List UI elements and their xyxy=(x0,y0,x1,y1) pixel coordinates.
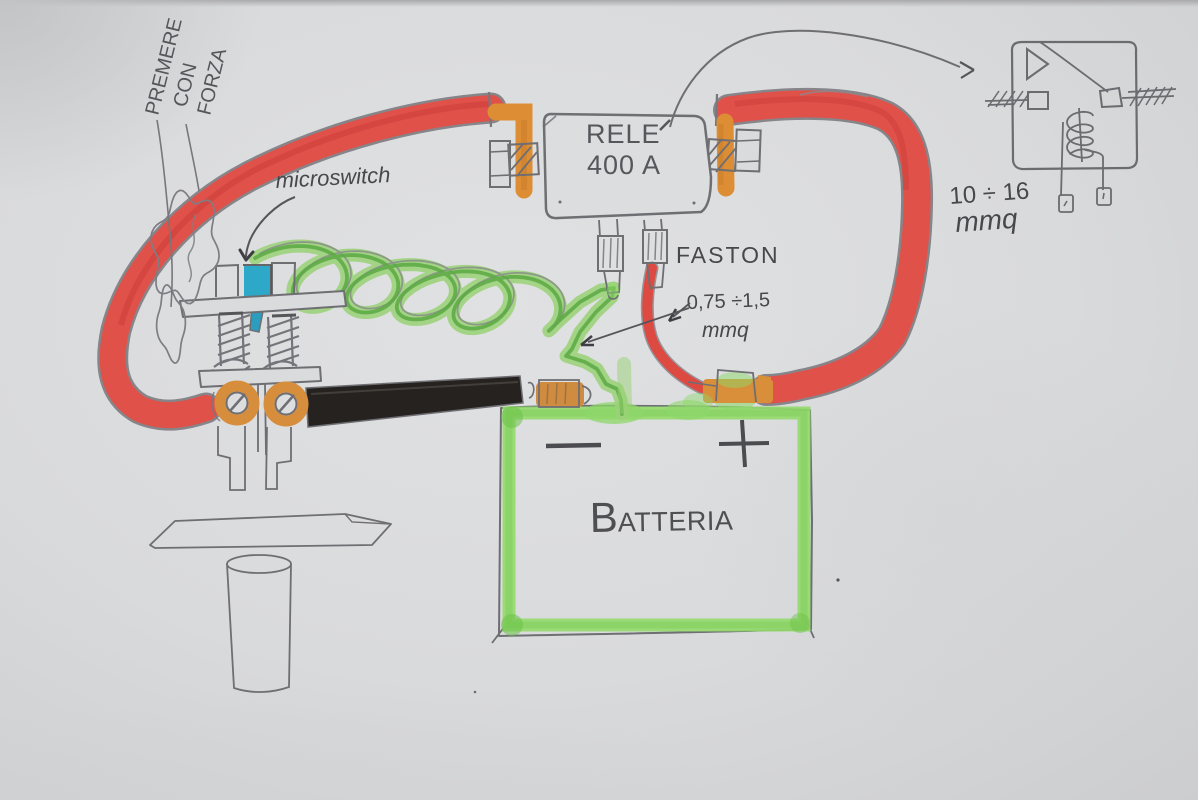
svg-text:mmq: mmq xyxy=(702,319,749,342)
svg-text:RELE: RELE xyxy=(586,119,661,149)
svg-text:FASTON: FASTON xyxy=(676,242,780,268)
svg-text:mmq: mmq xyxy=(954,203,1019,238)
svg-text:0,75 ÷1,5: 0,75 ÷1,5 xyxy=(686,289,770,314)
svg-text:400 A: 400 A xyxy=(587,150,661,180)
